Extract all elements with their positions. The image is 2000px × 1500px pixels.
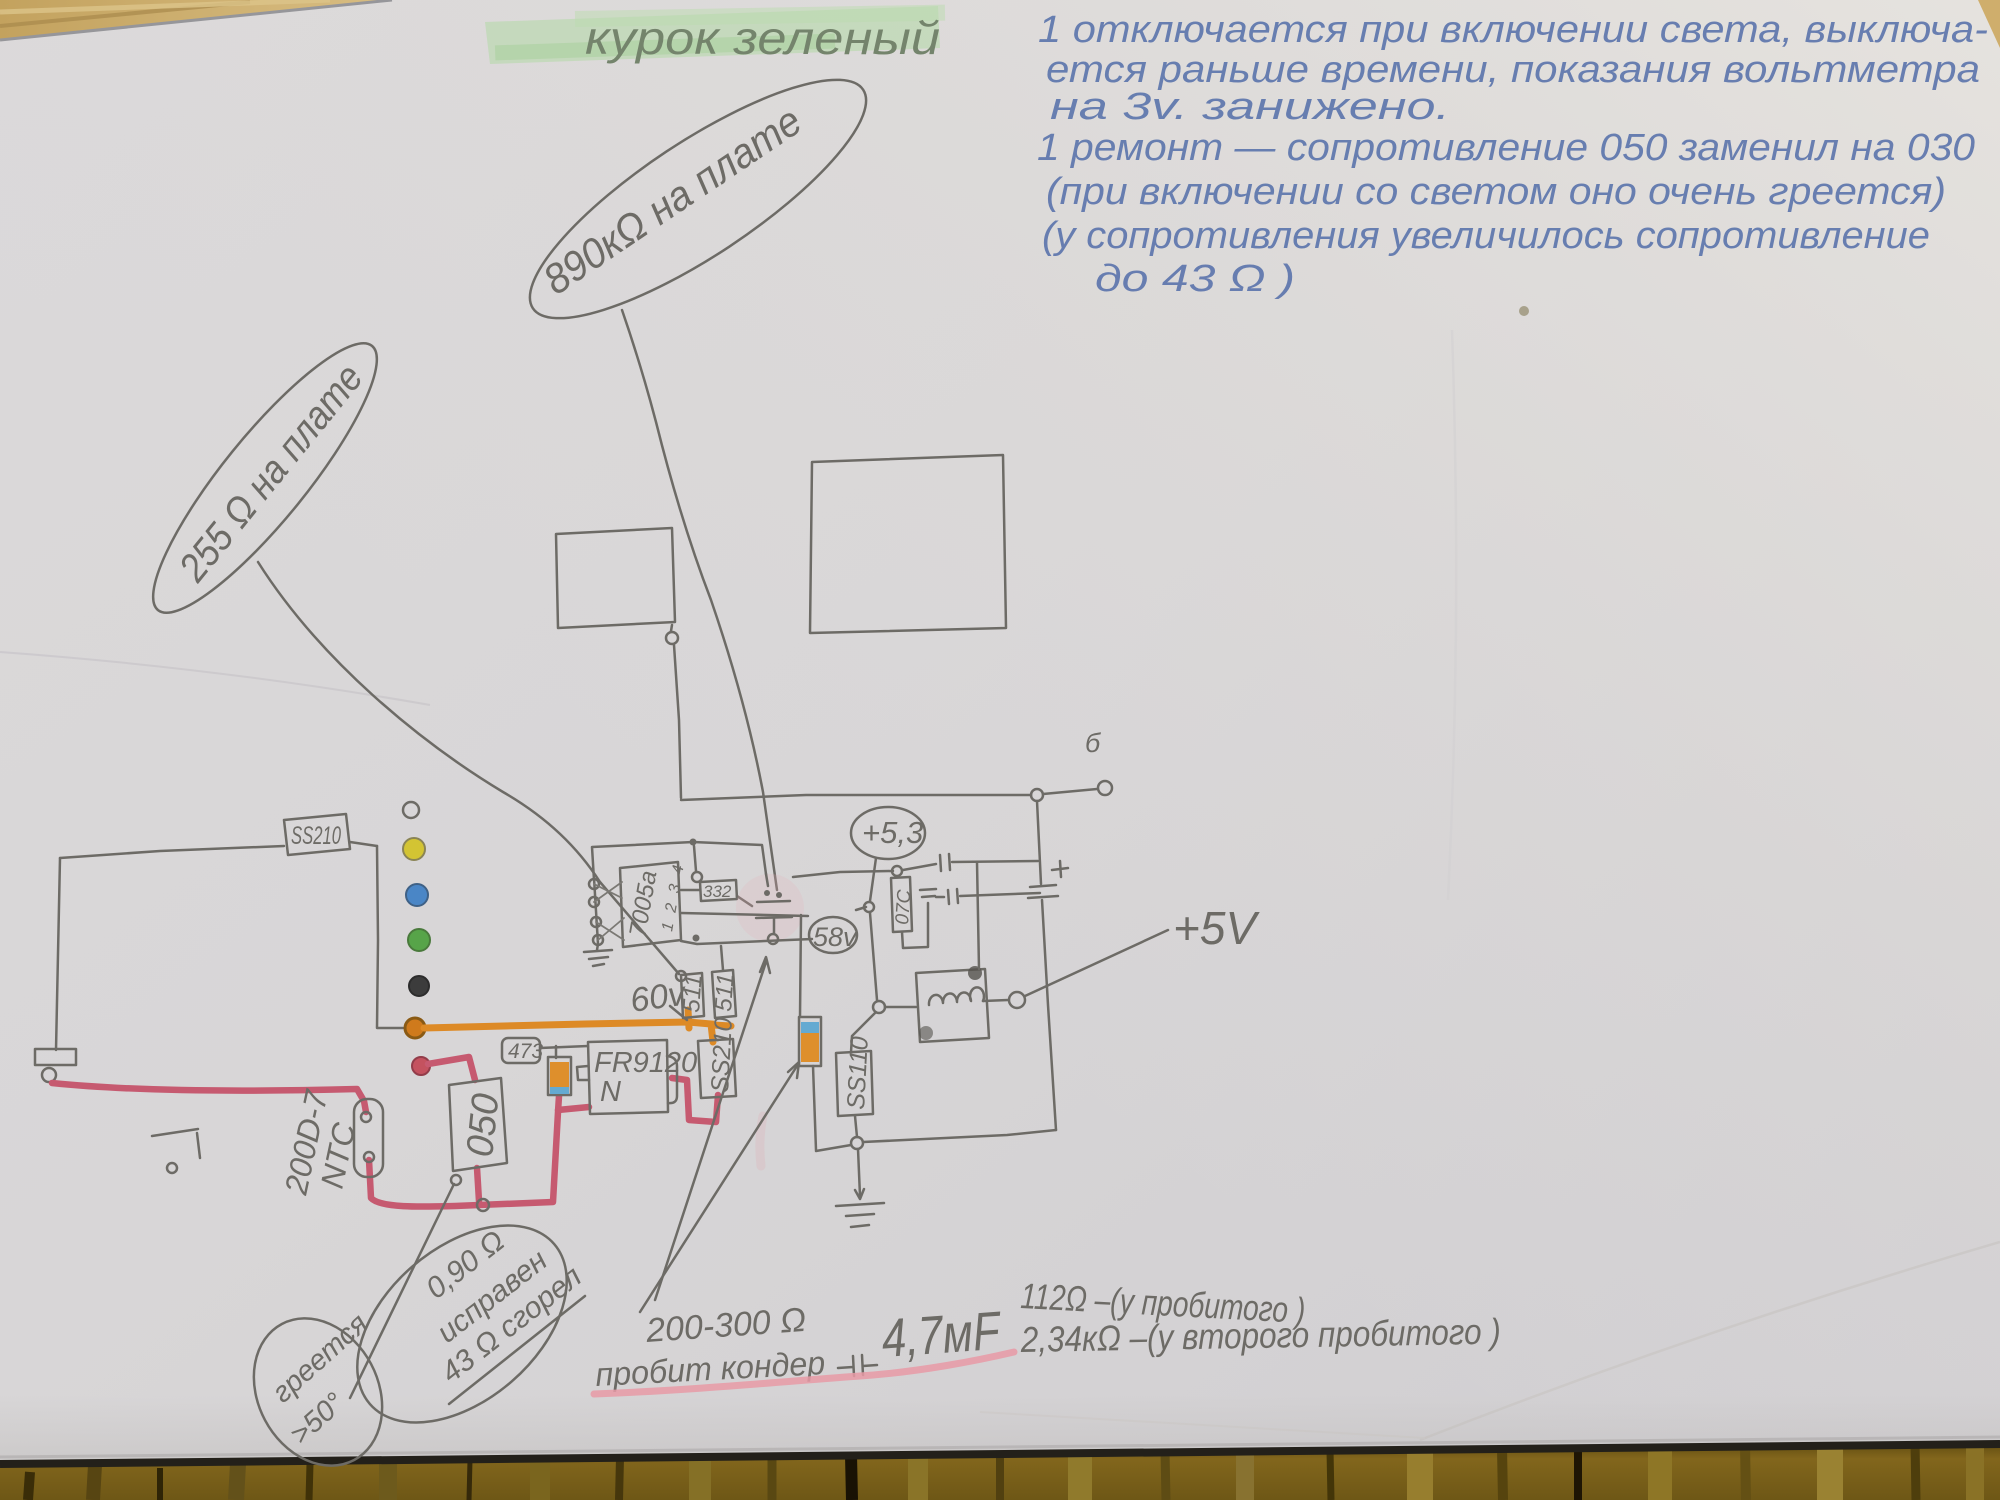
svg-text:N: N xyxy=(600,1076,621,1108)
svg-text:ется раньше времени, показания: ется раньше времени, показания вольтметр… xyxy=(1046,49,1980,91)
svg-text:07C: 07C xyxy=(892,889,915,926)
svg-text:(у сопротивления увеличилось с: (у сопротивления увеличилось сопротивлен… xyxy=(1042,215,1930,257)
svg-text:+5,3: +5,3 xyxy=(862,815,923,850)
svg-text:до 43 Ω ): до 43 Ω ) xyxy=(1095,258,1295,300)
svg-text:на 3v. занижено.: на 3v. занижено. xyxy=(1050,86,1450,128)
svg-text:FR9120: FR9120 xyxy=(594,1047,697,1079)
svg-text:б: б xyxy=(1085,728,1101,758)
svg-text:58v: 58v xyxy=(813,922,858,952)
svg-text:050: 050 xyxy=(459,1091,507,1158)
svg-text:SS210: SS210 xyxy=(291,822,341,850)
svg-text:курок зеленый: курок зеленый xyxy=(585,12,940,64)
svg-text:SS210: SS210 xyxy=(706,1017,738,1094)
svg-text:511: 511 xyxy=(710,972,740,1012)
svg-text:SS110: SS110 xyxy=(842,1036,874,1111)
svg-text:1 ремонт — сопротивление 050 з: 1 ремонт — сопротивление 050 заменил на … xyxy=(1037,127,1975,169)
svg-text:1 отключается при включении св: 1 отключается при включении света, выклю… xyxy=(1038,9,1988,51)
svg-text:+5V: +5V xyxy=(1173,902,1260,954)
svg-text:473: 473 xyxy=(508,1040,543,1063)
svg-text:2,34кΩ –(у второго пробитого ): 2,34кΩ –(у второго пробитого ) xyxy=(1020,1311,1502,1360)
svg-text:(при включении со светом оно о: (при включении со светом оно очень греет… xyxy=(1046,171,1946,213)
svg-text:332: 332 xyxy=(703,882,732,901)
